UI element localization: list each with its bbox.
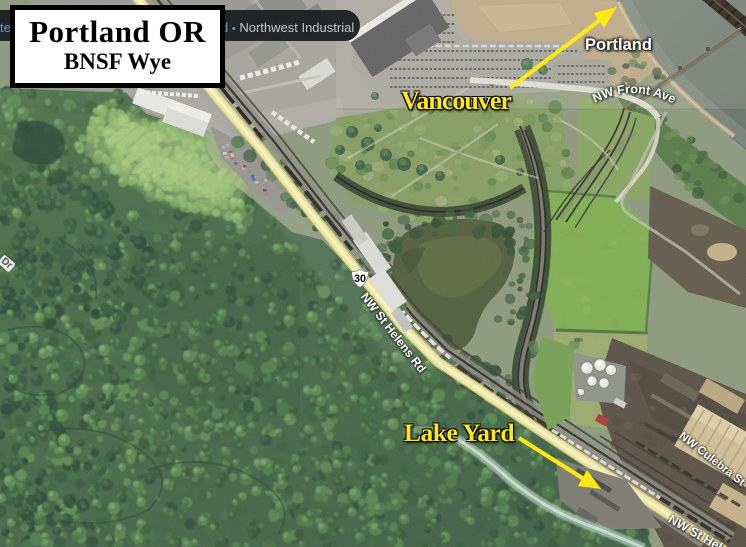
svg-text:NW Front Ave: NW Front Ave bbox=[590, 82, 678, 106]
svg-text:30: 30 bbox=[354, 273, 366, 285]
